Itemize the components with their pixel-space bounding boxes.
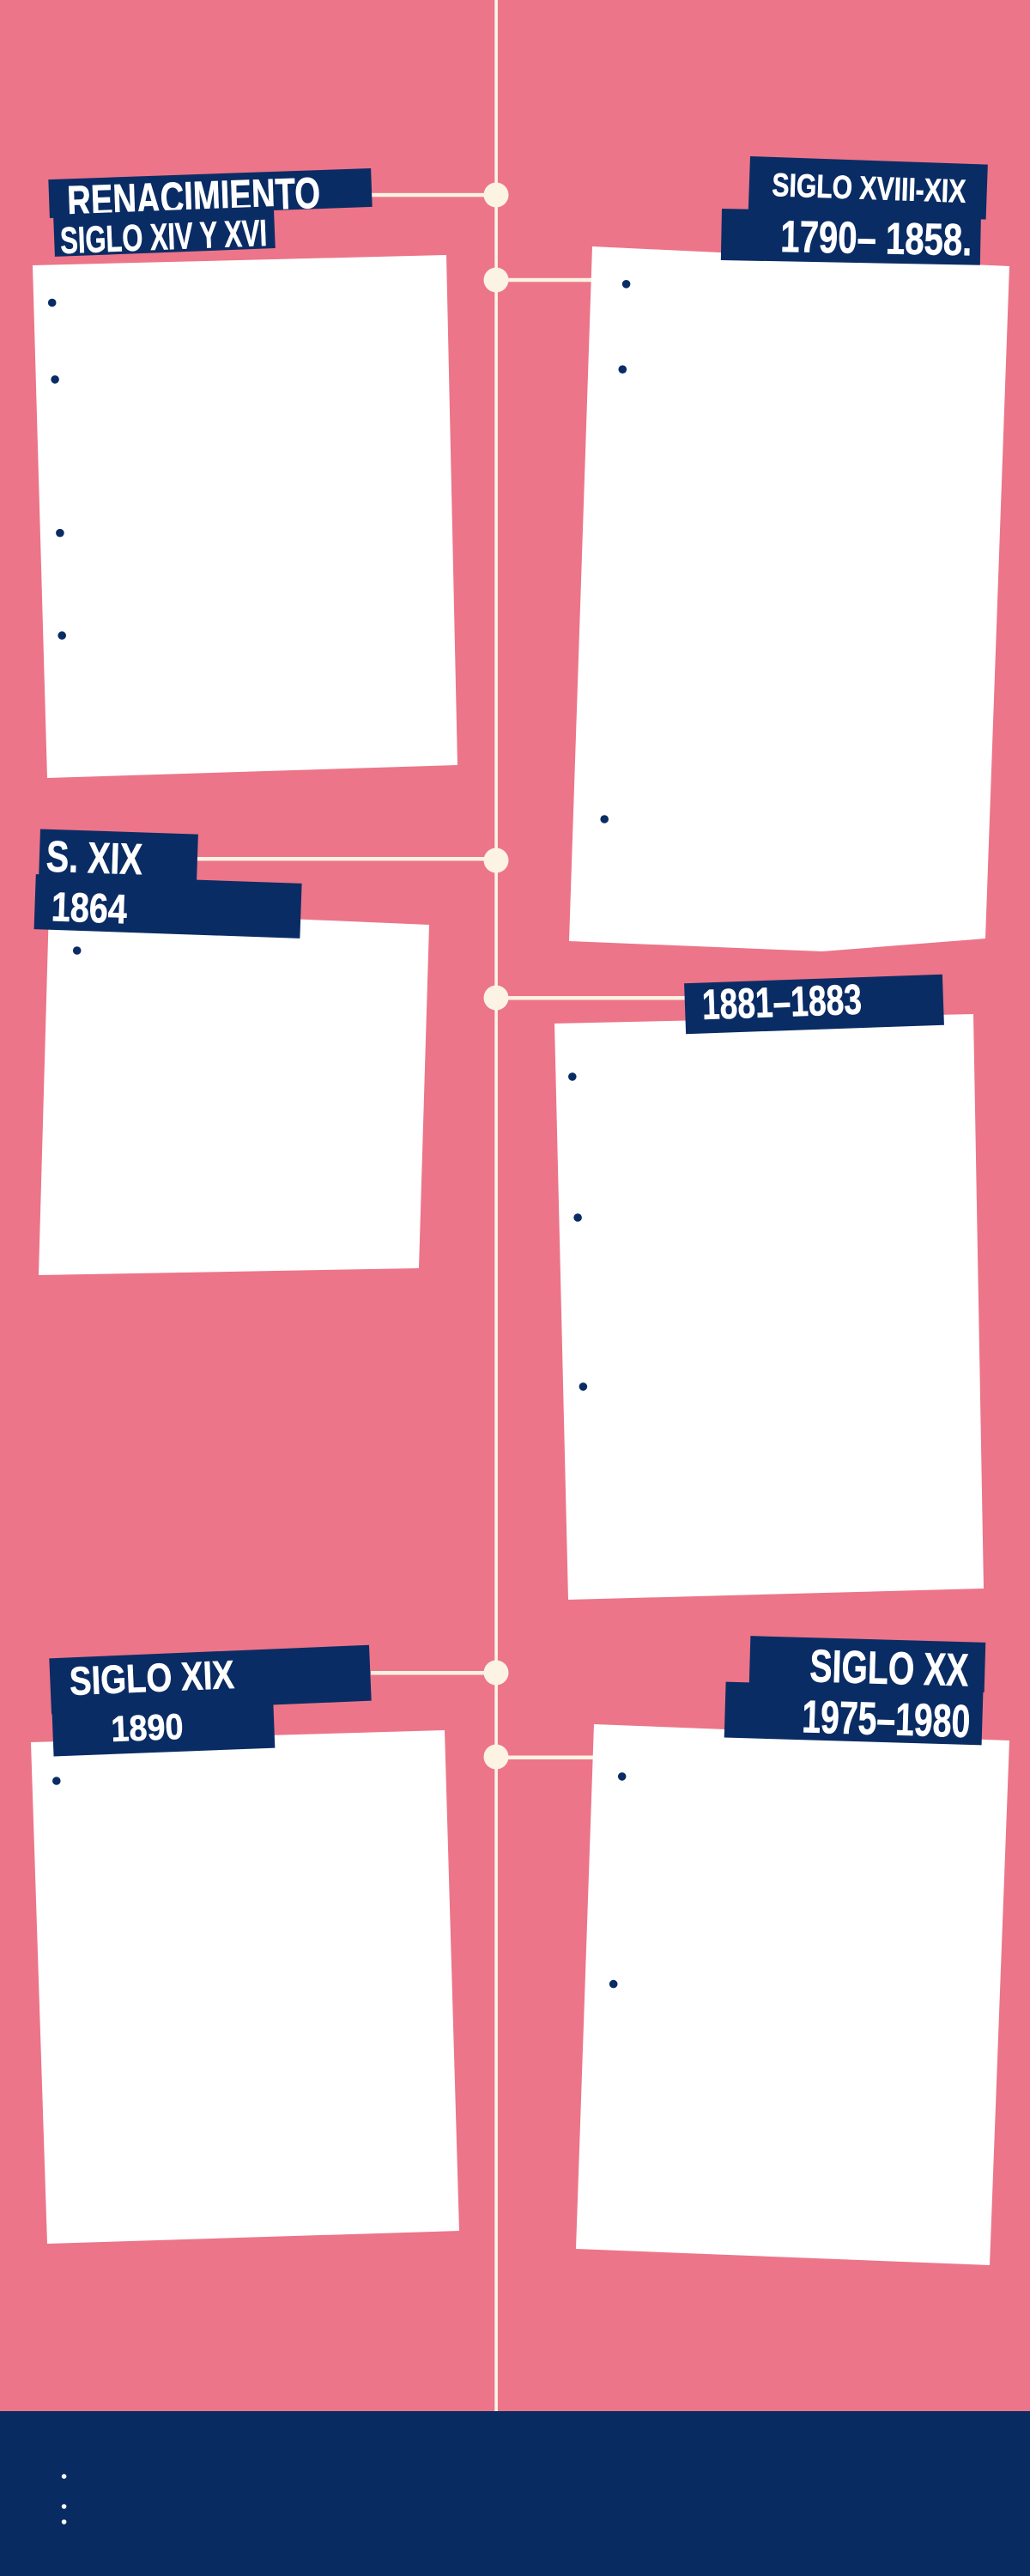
svg-text:1881–1883: 1881–1883 bbox=[701, 976, 863, 1029]
svg-text:1890: 1890 bbox=[111, 1706, 185, 1749]
svg-text:1790– 1858.: 1790– 1858. bbox=[780, 212, 972, 265]
svg-text:1975–1980: 1975–1980 bbox=[801, 1691, 971, 1747]
svg-text:SIGLO XVIII-XIX: SIGLO XVIII-XIX bbox=[772, 167, 967, 210]
svg-text:1864: 1864 bbox=[51, 884, 128, 933]
svg-text:SIGLO XIV Y XVI: SIGLO XIV Y XVI bbox=[59, 213, 268, 262]
svg-text:SIGLO XIX: SIGLO XIX bbox=[69, 1652, 235, 1704]
